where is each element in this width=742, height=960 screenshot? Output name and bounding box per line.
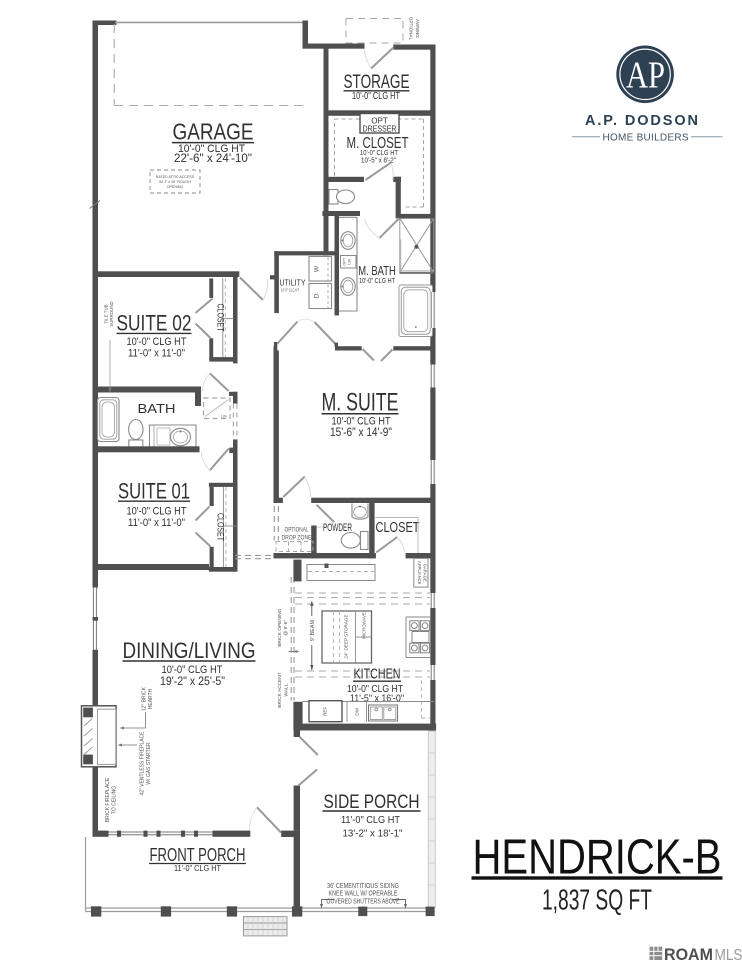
- svg-text:HENDRICK-B: HENDRICK-B: [473, 829, 722, 884]
- svg-text:SUITE 01: SUITE 01: [118, 478, 190, 503]
- svg-text:11'-0" CLG HT: 11'-0" CLG HT: [174, 864, 221, 873]
- svg-text:WALL: WALL: [284, 683, 290, 696]
- svg-text:19'-2" x 25'-5": 19'-2" x 25'-5": [160, 676, 225, 688]
- svg-text:10'-5" x 8'-2": 10'-5" x 8'-2": [361, 155, 396, 164]
- svg-text:11'-0" x 11'-0": 11'-0" x 11'-0": [128, 347, 185, 359]
- svg-text:GARAGE: GARAGE: [423, 564, 428, 582]
- svg-text:KITCHEN: KITCHEN: [354, 667, 401, 683]
- svg-text:DRESSER: DRESSER: [363, 125, 397, 134]
- svg-text:11'-0" CLG HT: 11'-0" CLG HT: [341, 814, 401, 826]
- svg-text:HOME BUILDERS: HOME BUILDERS: [603, 132, 689, 143]
- svg-text:10'-0" CLG HT: 10'-0" CLG HT: [359, 276, 395, 285]
- svg-text:1,837 SQ FT: 1,837 SQ FT: [542, 885, 652, 917]
- svg-text:12" BRICK: 12" BRICK: [142, 686, 148, 711]
- svg-text:11'-0" x 11'-0": 11'-0" x 11'-0": [128, 517, 185, 529]
- svg-text:AWNING: AWNING: [415, 19, 420, 38]
- svg-text:DINING/LIVING: DINING/LIVING: [123, 638, 256, 663]
- svg-text:SURROUND: SURROUND: [109, 301, 114, 326]
- svg-text:MICROWAVE: MICROWAVE: [362, 612, 367, 639]
- svg-text:42" VENTLESS FIREPLACE: 42" VENTLESS FIREPLACE: [140, 731, 146, 796]
- svg-text:36' CEMENTITIOUS SIDING: 36' CEMENTITIOUS SIDING: [327, 883, 399, 890]
- svg-text:OUVERED SHUTTERS ABOVE: OUVERED SHUTTERS ABOVE: [327, 898, 400, 905]
- svg-text:M. SUITE: M. SUITE: [322, 389, 399, 417]
- svg-text:OPTIONAL: OPTIONAL: [409, 17, 414, 41]
- svg-text:GARAGE: GARAGE: [173, 119, 254, 145]
- svg-text:SUITE 02: SUITE 02: [117, 311, 192, 336]
- svg-text:KNEE WALL W/ OPERABLE: KNEE WALL W/ OPERABLE: [329, 891, 398, 898]
- svg-text:ROAM: ROAM: [664, 945, 713, 960]
- svg-text:TILE TUB: TILE TUB: [104, 304, 109, 323]
- svg-text:OPTIONAL: OPTIONAL: [285, 527, 309, 534]
- svg-text:15'-6" x 14'-9": 15'-6" x 14'-9": [330, 427, 392, 439]
- svg-text:LIN: LIN: [348, 258, 352, 264]
- svg-text:UTILITY: UTILITY: [280, 278, 306, 288]
- svg-text:HEARTH: HEARTH: [148, 688, 154, 709]
- svg-text:STORAGE: STORAGE: [344, 71, 410, 93]
- svg-text:10'-0" CLG HT: 10'-0" CLG HT: [281, 287, 299, 292]
- svg-text:TO CEILING: TO CEILING: [112, 786, 118, 814]
- svg-text:APPLIANCE: APPLIANCE: [417, 561, 422, 585]
- svg-text:DW: DW: [355, 707, 360, 715]
- svg-text:@ 9'-6": @ 9'-6": [283, 620, 289, 636]
- svg-text:BRICK ACCENT: BRICK ACCENT: [277, 672, 283, 708]
- svg-text:10'-0" CLG HT: 10'-0" CLG HT: [127, 336, 187, 348]
- svg-text:13'-2" x 18'-1": 13'-2" x 18'-1": [343, 828, 403, 840]
- svg-text:OPT: OPT: [343, 257, 347, 265]
- svg-text:LIN: LIN: [221, 415, 227, 419]
- svg-text:DROP ZONE: DROP ZONE: [282, 535, 312, 542]
- svg-text:9' BEAM: 9' BEAM: [310, 619, 316, 641]
- svg-text:D: D: [314, 293, 321, 298]
- svg-text:10'-0" CLG HT: 10'-0" CLG HT: [127, 505, 187, 517]
- svg-text:SIDE PORCH: SIDE PORCH: [324, 792, 420, 813]
- svg-text:MLS: MLS: [715, 947, 742, 960]
- svg-text:10'-0" CLG HT: 10'-0" CLG HT: [352, 91, 400, 102]
- svg-text:FRONT PORCH: FRONT PORCH: [150, 845, 246, 865]
- svg-text:OPENING: OPENING: [167, 185, 184, 189]
- svg-text:RATED ATTIC ACCESS: RATED ATTIC ACCESS: [156, 175, 195, 179]
- svg-text:CLOSET: CLOSET: [376, 519, 420, 536]
- svg-text:BRICK FIREPLACE: BRICK FIREPLACE: [105, 777, 111, 822]
- svg-text:24" DEEP STORAGE: 24" DEEP STORAGE: [344, 614, 349, 658]
- svg-text:W: W: [314, 265, 321, 272]
- svg-text:54 J" x 26" ROUGH: 54 J" x 26" ROUGH: [159, 180, 191, 184]
- svg-text:CLOSET: CLOSET: [216, 513, 226, 541]
- svg-text:BRICK OPENING: BRICK OPENING: [277, 608, 283, 646]
- svg-text:REF: REF: [323, 707, 328, 716]
- svg-text:CLOSET: CLOSET: [216, 304, 226, 332]
- svg-text:11'-5" x 16'-0": 11'-5" x 16'-0": [350, 692, 404, 704]
- svg-text:BATH: BATH: [138, 401, 176, 416]
- svg-text:W/ GAS STARTER: W/ GAS STARTER: [146, 742, 152, 785]
- svg-text:22'-6" x 24'-10": 22'-6" x 24'-10": [174, 153, 252, 165]
- svg-text:10'-0" CLG HT: 10'-0" CLG HT: [332, 416, 391, 428]
- svg-text:AP: AP: [626, 54, 665, 96]
- svg-text:10'-0" CLG HT: 10'-0" CLG HT: [162, 664, 223, 676]
- svg-text:POWDER: POWDER: [323, 522, 352, 534]
